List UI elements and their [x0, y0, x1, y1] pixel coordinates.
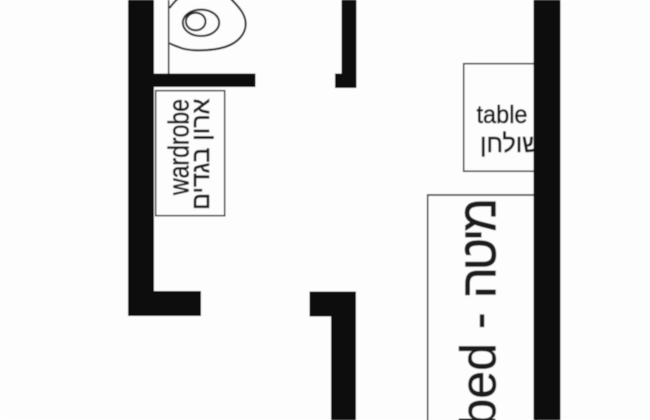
svg-text:שולחן: שולחן: [480, 130, 540, 158]
svg-text:ארון בגדים: ארון בגדים: [187, 98, 215, 210]
svg-text:bed - מיטה: bed - מיטה: [451, 201, 507, 420]
svg-text:table: table: [477, 101, 528, 129]
